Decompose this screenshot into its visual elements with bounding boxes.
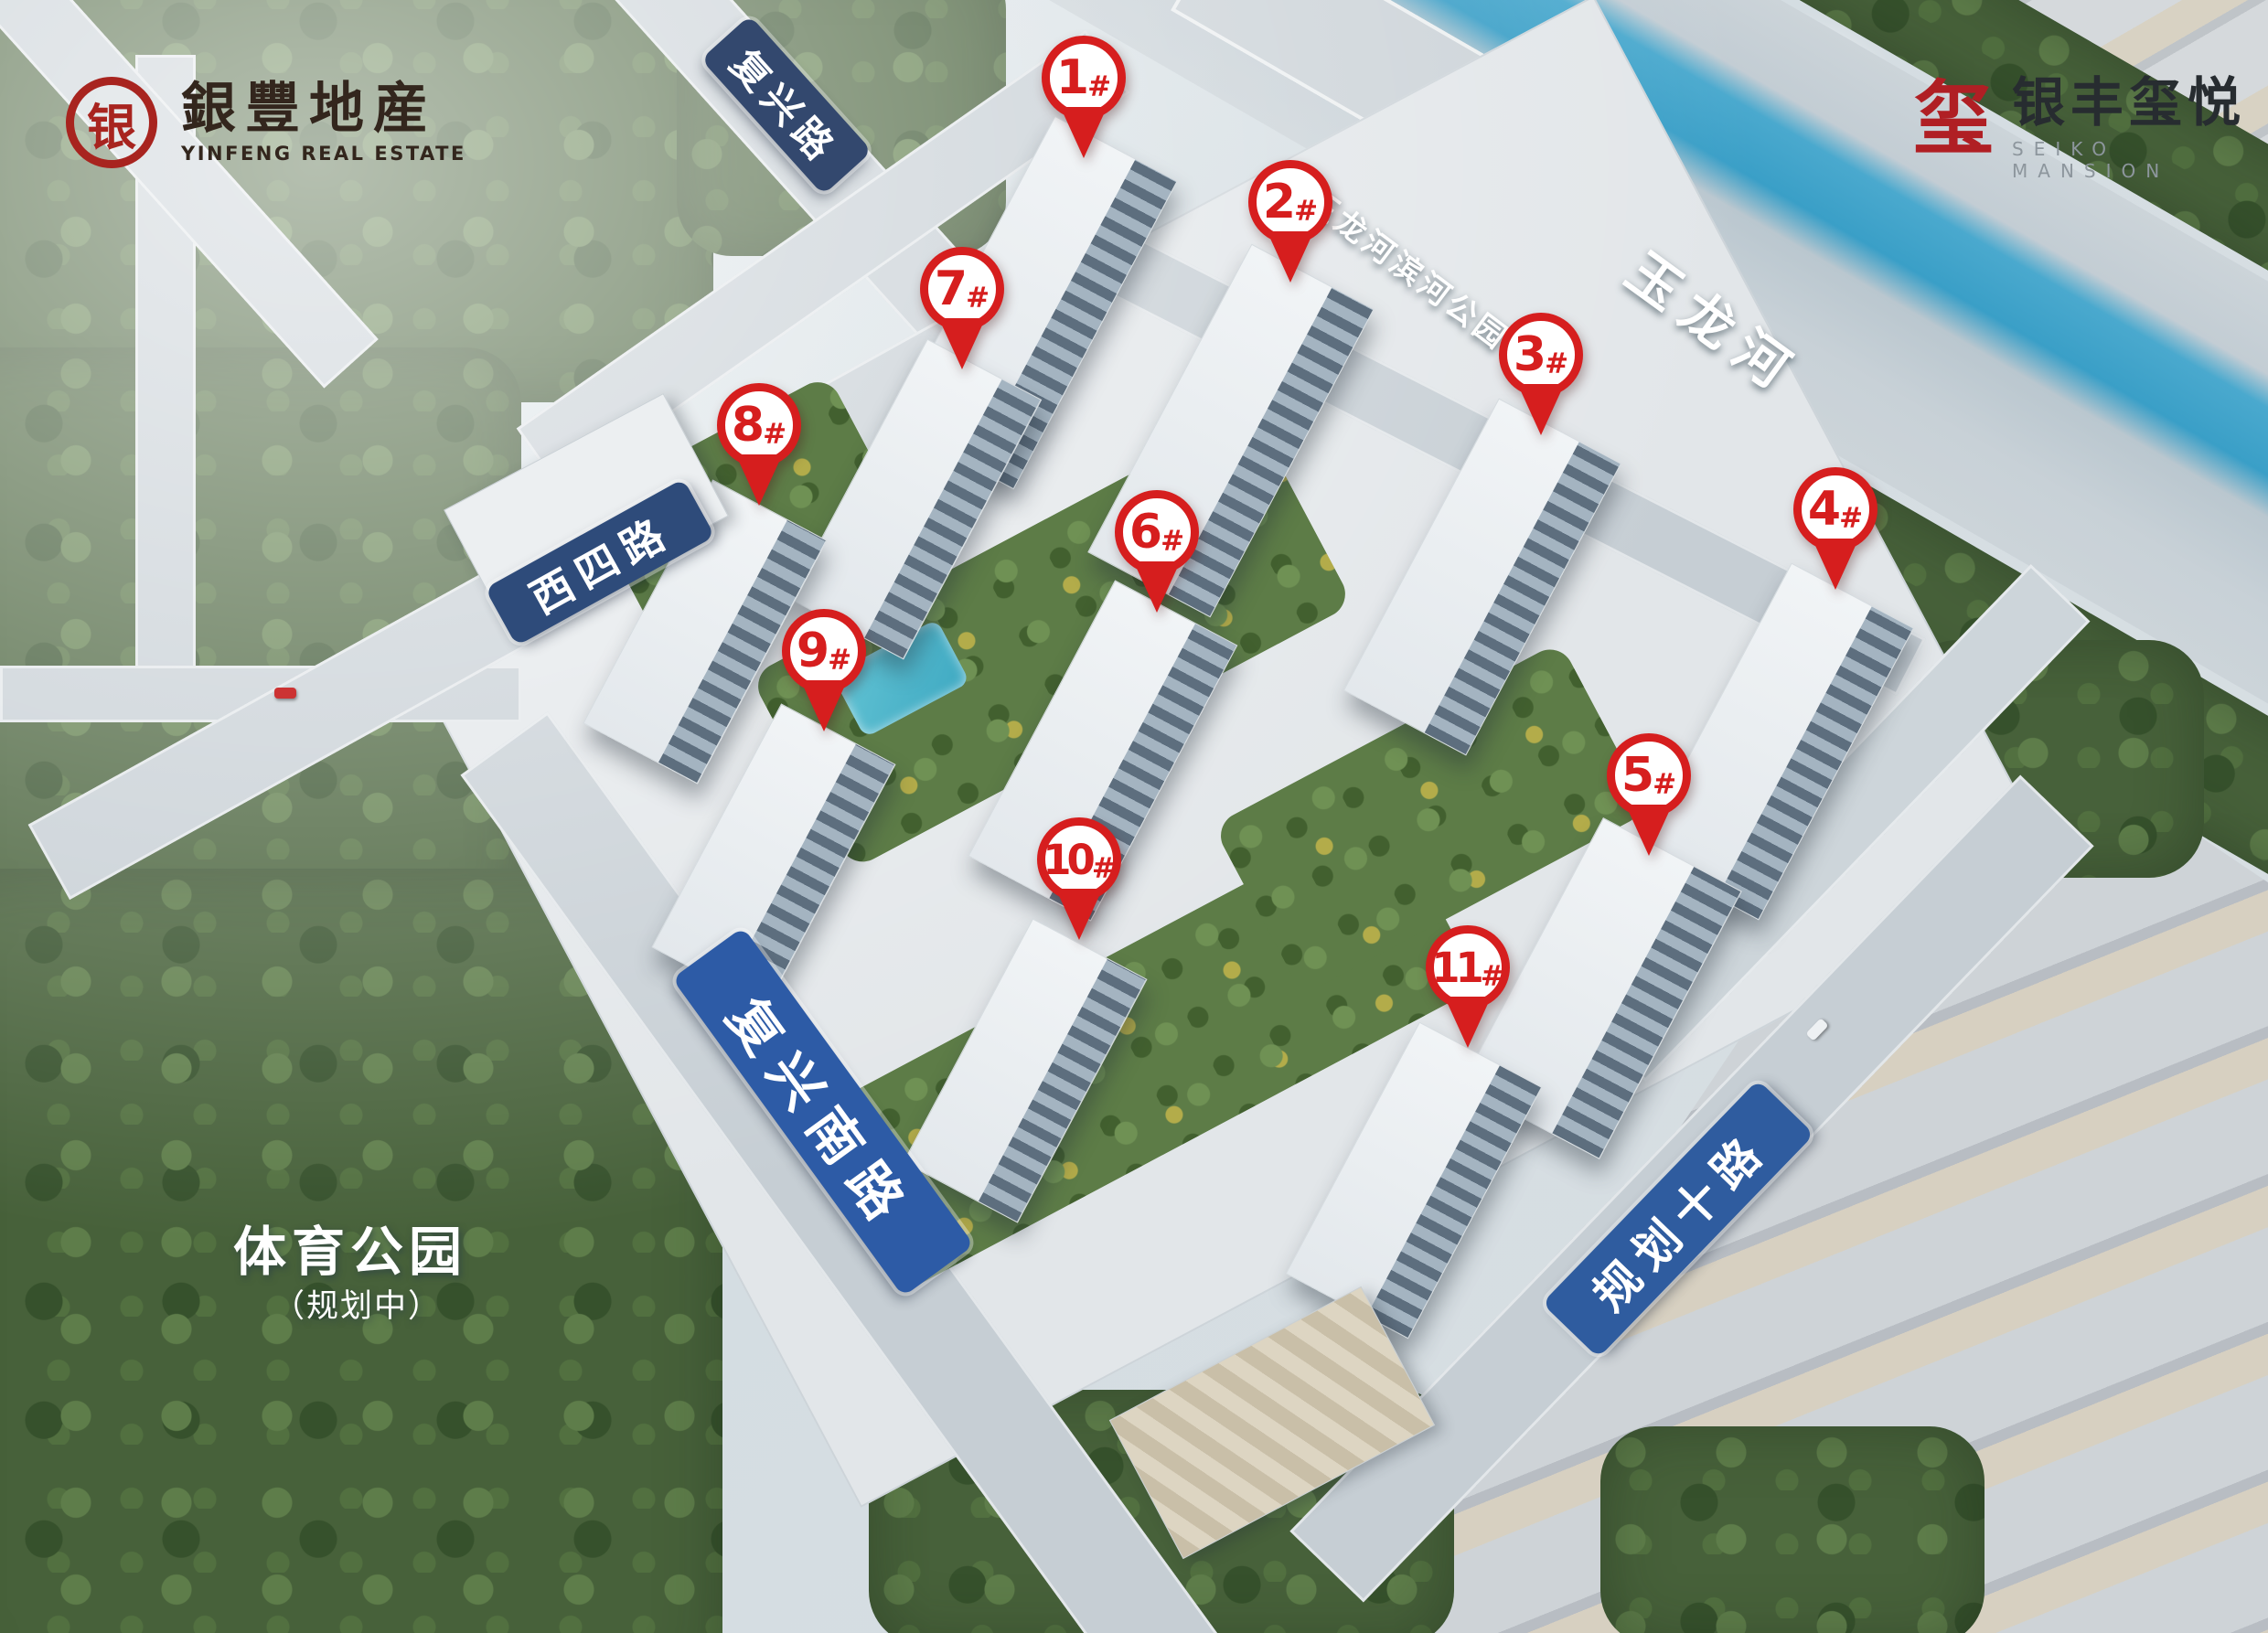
building-marker-3[interactable]: 3# [1499,313,1583,435]
building-marker-8[interactable]: 8# [717,383,801,506]
marker-pointer [1622,805,1675,856]
developer-logo: 银 銀豐地産 YINFENG REAL ESTATE [66,77,466,168]
project-name-cn: 银丰玺悦 [2012,75,2268,131]
developer-name-en: YINFENG REAL ESTATE [181,143,466,165]
marker-number: 3 [1514,331,1544,379]
project-name-en: SEIKO MANSION [2012,138,2268,182]
building-marker-4[interactable]: 4# [1793,467,1878,590]
yinfeng-seal-icon: 银 [66,77,157,168]
marker-hash: # [828,646,851,675]
project-logo-text: 银丰玺悦 SEIKO MANSION [2012,75,2268,182]
marker-hash: # [1545,350,1568,379]
marker-pointer [797,680,850,731]
sports-park-label: 体育公园 [233,1209,467,1286]
marker-number: 6 [1129,508,1160,556]
forest-bottom-east [1600,1426,1984,1633]
building-marker-1[interactable]: 1# [1042,36,1126,158]
marker-pointer [1441,997,1494,1048]
project-logo: 玺 银丰玺悦 SEIKO MANSION [1913,75,2268,182]
building-marker-5[interactable]: 5# [1607,733,1691,856]
marker-pointer [1809,539,1862,590]
marker-pointer [1264,231,1317,283]
marker-pointer [936,318,989,369]
marker-hash: # [1092,855,1116,883]
marker-pointer [733,454,786,506]
emblem-glyph: 银 [87,87,136,159]
marker-number: 4 [1808,486,1838,533]
developer-name-cn: 銀豐地産 [181,80,466,138]
aerial-site-plan: 复兴路 西四路 复兴南路 规划十路 玉龙河 玉龙河滨河公园 体育公园 （规划中）… [0,0,2268,1633]
marker-hash: # [1161,528,1184,556]
sports-park-note: （规划中） [273,1280,442,1327]
marker-number: 2 [1263,178,1293,226]
building-marker-11[interactable]: 11# [1426,925,1510,1048]
marker-number: 9 [797,627,827,675]
emblem-glyph: 玺 [1913,78,1994,158]
marker-number: 5 [1621,752,1652,799]
marker-number: 11 [1431,947,1480,988]
marker-number: 10 [1043,839,1091,881]
marker-hash: # [1481,963,1504,991]
building-marker-10[interactable]: 10# [1037,817,1121,940]
marker-hash: # [1653,771,1676,799]
car-red-2 [274,688,296,699]
building-marker-9[interactable]: 9# [782,609,866,731]
building-marker-2[interactable]: 2# [1248,160,1332,283]
marker-pointer [1130,561,1183,613]
marker-pointer [1514,384,1567,435]
building-marker-6[interactable]: 6# [1115,490,1199,613]
developer-logo-text: 銀豐地産 YINFENG REAL ESTATE [181,80,466,165]
marker-number: 1 [1056,54,1086,101]
marker-number: 8 [732,401,762,449]
building-marker-7[interactable]: 7# [920,247,1004,369]
marker-hash: # [1294,197,1318,226]
marker-hash: # [1839,505,1863,533]
marker-hash: # [1087,73,1111,101]
marker-pointer [1053,889,1106,940]
marker-number: 7 [935,265,965,313]
marker-hash: # [763,421,786,449]
seiko-mansion-seal-icon: 玺 [1913,75,1994,161]
marker-hash: # [966,284,990,313]
marker-pointer [1057,107,1110,158]
